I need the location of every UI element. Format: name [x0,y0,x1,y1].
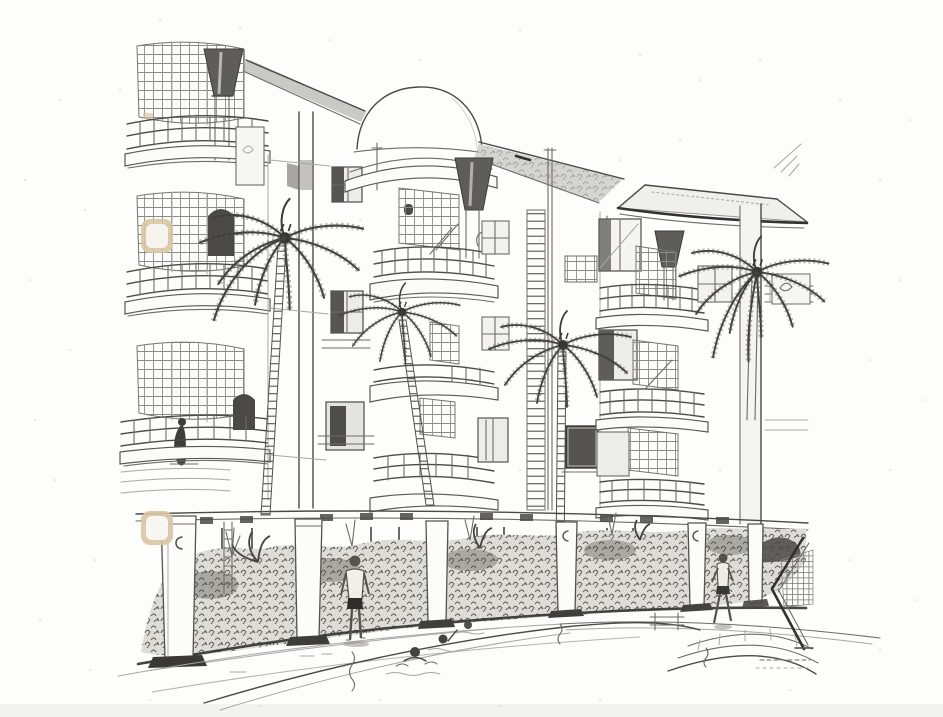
lattice-screen [399,188,459,250]
corner-face [740,206,761,524]
window [482,221,509,254]
bottom-scan-strip [0,704,943,717]
lattice-window [565,256,597,282]
arched-door [233,394,255,430]
lattice-screen [628,428,678,476]
lattice-screen [420,398,455,438]
figure-head [719,554,728,563]
window [597,432,629,476]
architectural-sketch [0,0,943,717]
figure-head [350,556,361,567]
swim-trunks [347,598,363,609]
tall-window [236,127,264,185]
dark-window [562,426,602,472]
window [482,317,509,350]
scanned-sketch-page [0,0,943,717]
window [478,418,508,462]
lattice-screen [430,322,459,364]
lattice-screen [633,340,678,390]
tan-artifact [143,113,153,119]
